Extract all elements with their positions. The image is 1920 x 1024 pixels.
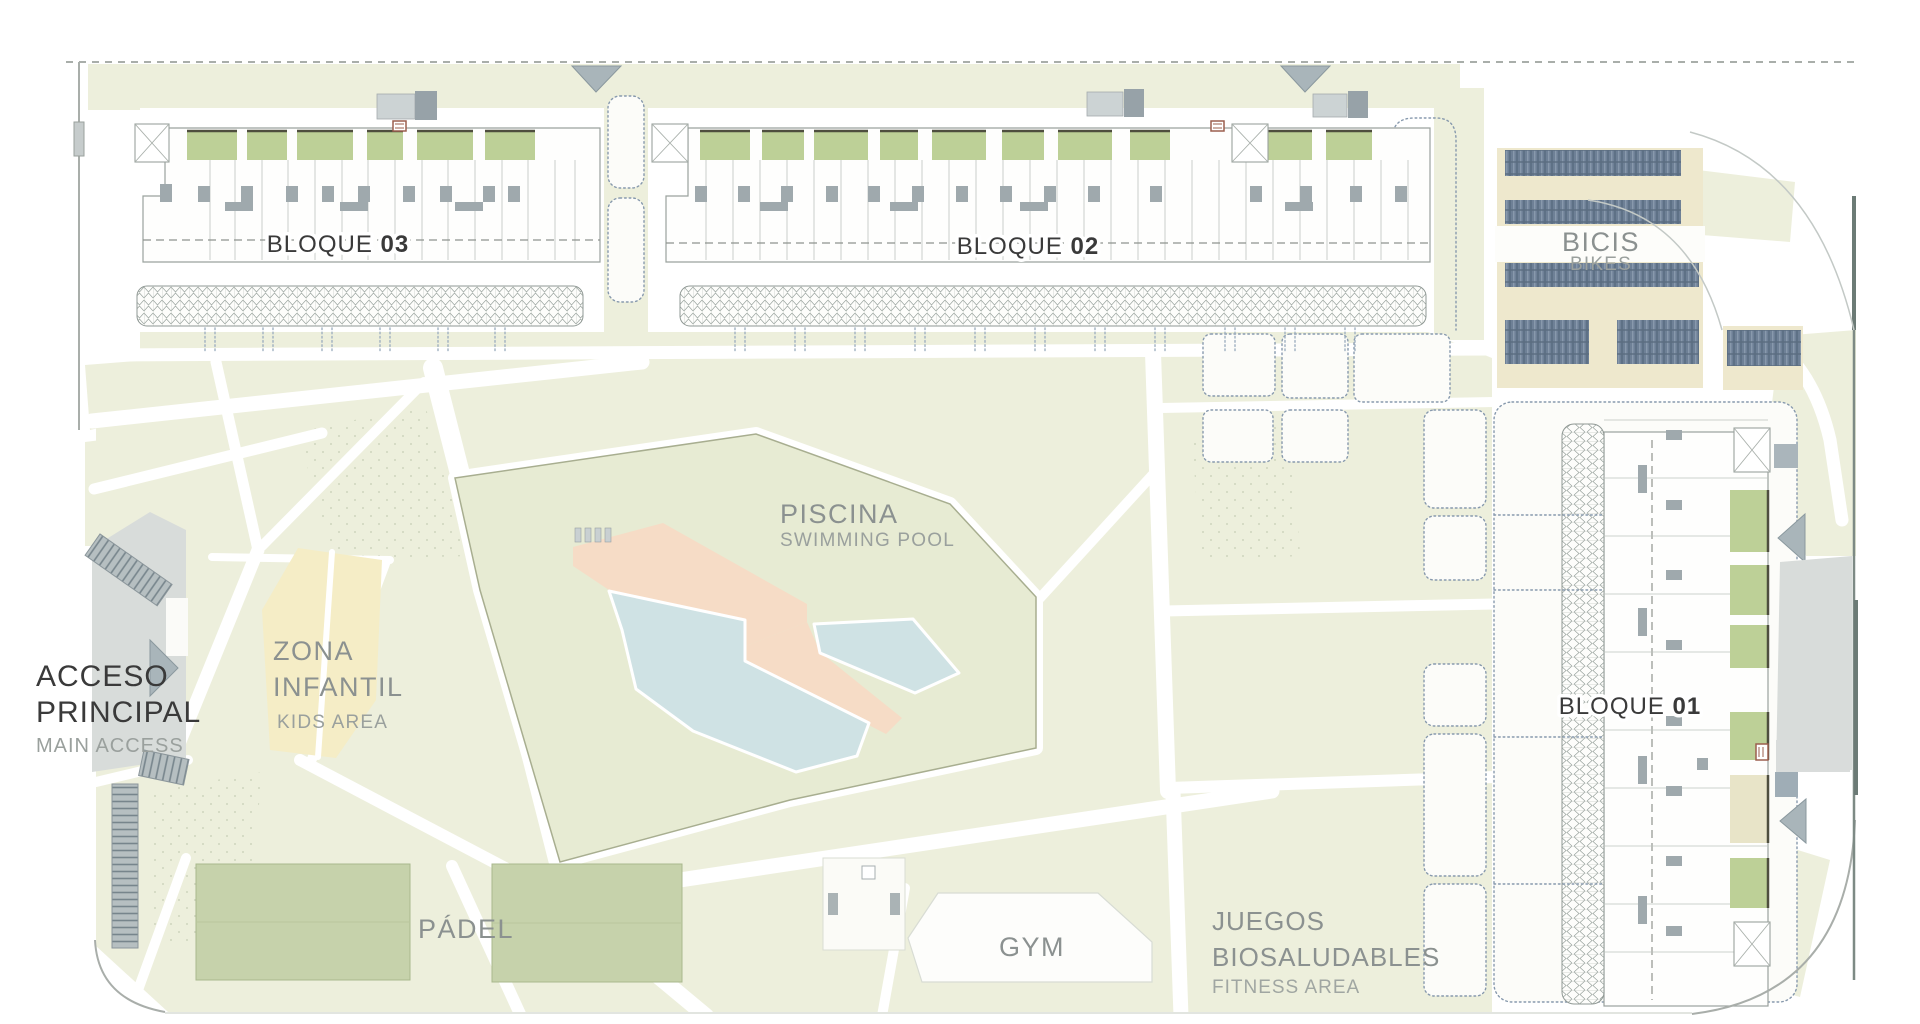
- lawn-top-strip: [88, 64, 1460, 108]
- label-piscina: PISCINA: [780, 499, 899, 529]
- pergola-structure: [1313, 94, 1347, 117]
- calisthenics-plot: [823, 858, 905, 950]
- label-principal: PRINCIPAL: [36, 696, 201, 729]
- bike-rack-row: [1505, 150, 1681, 176]
- bike-rack-row: [1505, 200, 1681, 224]
- b03-utility-box: [393, 121, 406, 131]
- lawn-strip-right-of-b02: [1434, 88, 1484, 340]
- b03-pergola-band: [137, 286, 583, 326]
- label-biosaludables: BIOSALUDABLES: [1212, 942, 1440, 972]
- bike-rack-column: [1617, 320, 1699, 364]
- label-swimming-pool: SWIMMING POOL: [780, 530, 955, 551]
- label-fitness-area: FITNESS AREA: [1212, 977, 1360, 998]
- b02-utility-box: [1211, 121, 1224, 131]
- b01-stair-core-bottom: [1734, 922, 1770, 966]
- label-bloque-01: BLOQUE 01: [1559, 693, 1701, 720]
- utility-structure: [1775, 772, 1798, 797]
- b01-utility-box: [1756, 744, 1768, 760]
- bike-rack-column: [1505, 320, 1589, 364]
- label-infantil: INFANTIL: [273, 672, 404, 702]
- b01-stair-core-top: [1734, 428, 1770, 472]
- bloque-03-building: [135, 91, 600, 352]
- label-acceso: ACCESO: [36, 660, 169, 693]
- label-main-access: MAIN ACCESS: [36, 735, 184, 757]
- b02-stair-core-right: [1232, 124, 1268, 162]
- b02-patios: [700, 131, 1372, 160]
- bloque-02-building: [652, 89, 1430, 352]
- label-kids-area: KIDS AREA: [277, 712, 388, 733]
- lawn-topleft: [88, 64, 140, 110]
- label-bloque-03: BLOQUE 03: [267, 231, 409, 258]
- access-crossing: [166, 598, 188, 656]
- site-plan: BLOQUE 03 BLOQUE 02 BLOQUE 01 PISCINA SW…: [0, 0, 1920, 1024]
- pergola-structure: [377, 94, 415, 119]
- lawn-topright-blob: [1698, 170, 1795, 242]
- label-padel: PÁDEL: [418, 914, 514, 944]
- label-bloque-02: BLOQUE 02: [957, 233, 1099, 260]
- bike-rack-row: [1727, 330, 1801, 366]
- perimeter-road: [1776, 556, 1852, 772]
- utility-structure: [1774, 444, 1798, 468]
- boundary-gate: [74, 122, 84, 156]
- pergola-structure: [1087, 92, 1123, 116]
- utility-structure: [1348, 91, 1368, 118]
- b02-pergola-band: [680, 286, 1426, 326]
- perimeter-road-patch: [1776, 740, 1850, 772]
- b03-stair-core: [135, 124, 169, 162]
- label-bicis: BICIS: [1562, 227, 1640, 257]
- label-zona: ZONA: [273, 636, 354, 666]
- utility-structure: [1124, 89, 1144, 117]
- label-bikes: BIKES: [1570, 254, 1632, 275]
- label-juegos: JUEGOS: [1212, 906, 1325, 936]
- utility-structure: [415, 91, 437, 120]
- b02-stair-core-left: [652, 124, 688, 162]
- access-stairs: [112, 784, 138, 948]
- label-gym: GYM: [999, 932, 1065, 962]
